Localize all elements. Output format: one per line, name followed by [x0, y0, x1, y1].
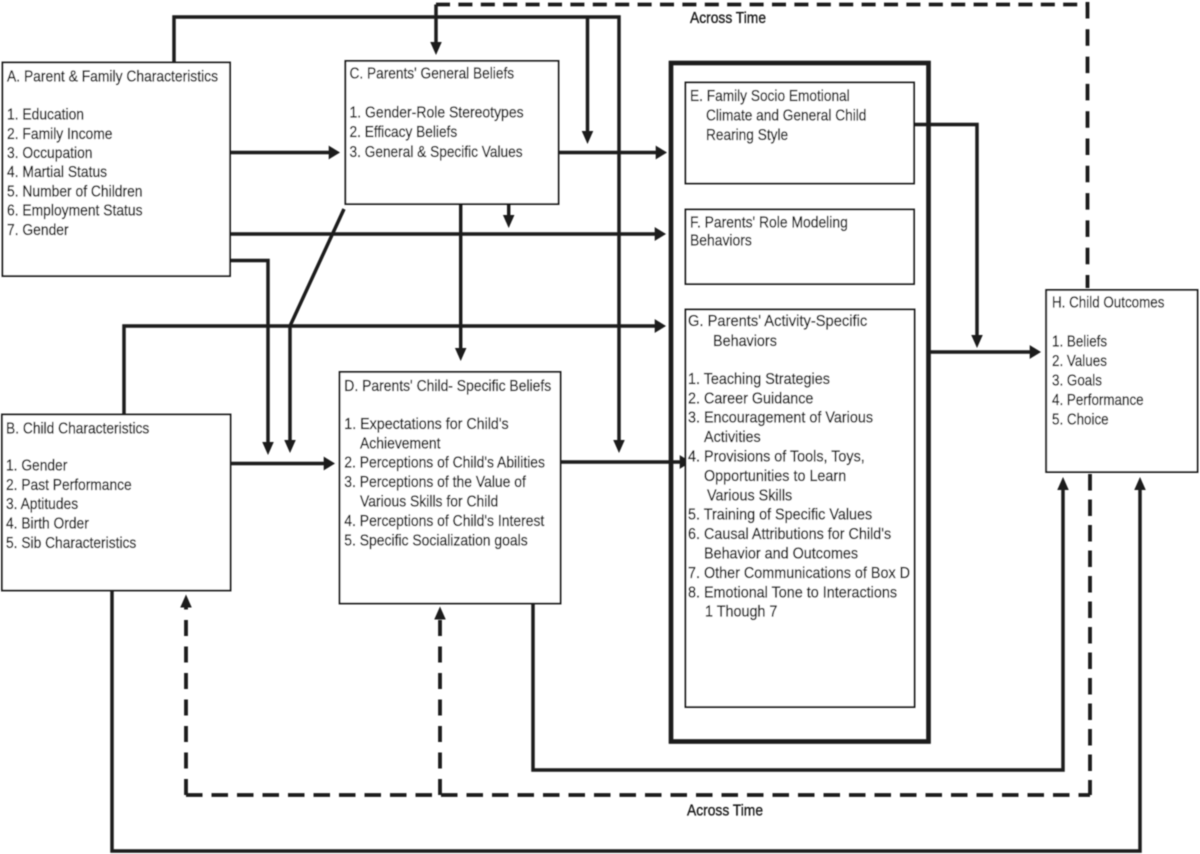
svg-text:1. Gender: 1. Gender	[6, 458, 68, 475]
svg-text:Behaviors: Behaviors	[713, 333, 777, 350]
svg-text:1. Education: 1. Education	[7, 107, 84, 124]
svg-text:6. Causal Attributions for Chi: 6. Causal Attributions for Child's	[688, 526, 891, 543]
svg-text:3. Goals: 3. Goals	[1052, 373, 1102, 390]
svg-text:E. Family Socio Emotional: E. Family Socio Emotional	[690, 88, 850, 105]
svg-text:5. Sib Characteristics: 5. Sib Characteristics	[6, 535, 136, 552]
svg-text:5. Training of Specific Values: 5. Training of Specific Values	[688, 507, 872, 524]
svg-text:3. General & Specific Values: 3. General & Specific Values	[350, 144, 523, 161]
svg-text:Various Skills: Various Skills	[707, 487, 792, 504]
svg-text:3. Occupation: 3. Occupation	[7, 145, 93, 162]
svg-text:3. Encouragement of Various: 3. Encouragement of Various	[688, 410, 873, 427]
svg-text:1. Beliefs: 1. Beliefs	[1052, 334, 1107, 351]
svg-text:2. Family Income: 2. Family Income	[7, 126, 113, 143]
svg-text:A. Parent & Family Characteris: A. Parent & Family Characteristics	[7, 69, 218, 86]
svg-text:1 Though 7: 1 Though 7	[705, 604, 777, 621]
svg-text:3. Aptitudes: 3. Aptitudes	[6, 496, 78, 513]
svg-text:7. Other Communications of Box: 7. Other Communications of Box D	[688, 565, 910, 582]
svg-text:G. Parents' Activity-Specific: G. Parents' Activity-Specific	[688, 313, 867, 330]
svg-text:5. Choice: 5. Choice	[1052, 411, 1109, 428]
svg-text:Opportunities to Learn: Opportunities to Learn	[704, 468, 846, 485]
svg-text:2. Past Performance: 2. Past Performance	[6, 477, 132, 494]
svg-text:Achievement: Achievement	[360, 435, 441, 452]
svg-text:Across Time: Across Time	[687, 803, 763, 820]
svg-text:F. Parents' Role Modeling: F. Parents' Role Modeling	[690, 215, 848, 232]
svg-text:4. Performance: 4. Performance	[1052, 392, 1144, 409]
svg-text:Activities: Activities	[704, 429, 761, 446]
svg-text:8. Emotional Tone to Interacti: 8. Emotional Tone to Interactions	[688, 584, 897, 601]
svg-text:2. Efficacy Beliefs: 2. Efficacy Beliefs	[350, 124, 458, 141]
svg-text:1. Teaching Strategies: 1. Teaching Strategies	[688, 371, 830, 388]
svg-text:5. Number of Children: 5. Number of Children	[7, 183, 143, 200]
svg-text:Across Time: Across Time	[690, 10, 766, 27]
svg-text:2. Values: 2. Values	[1052, 353, 1107, 370]
svg-text:3. Perceptions of the Value of: 3. Perceptions of the Value of	[344, 474, 526, 491]
svg-text:Various Skills for Child: Various Skills for Child	[360, 494, 498, 511]
svg-text:1. Expectations for Child's: 1. Expectations for Child's	[344, 416, 508, 433]
svg-text:1. Gender-Role Stereotypes: 1. Gender-Role Stereotypes	[350, 104, 524, 121]
svg-text:Behaviors: Behaviors	[690, 233, 752, 250]
svg-text:D. Parents' Child- Specific Be: D. Parents' Child- Specific Beliefs	[344, 378, 551, 395]
svg-text:Climate and General Child: Climate and General Child	[706, 108, 866, 125]
svg-text:Behavior and Outcomes: Behavior and Outcomes	[704, 546, 858, 563]
svg-text:H. Child Outcomes: H. Child Outcomes	[1052, 294, 1165, 311]
svg-text:C. Parents' General Beliefs: C. Parents' General Beliefs	[350, 66, 515, 83]
svg-text:B. Child Characteristics: B. Child Characteristics	[6, 421, 149, 438]
svg-text:4. Martial Status: 4. Martial Status	[7, 164, 107, 181]
svg-text:Rearing Style: Rearing Style	[706, 127, 788, 144]
svg-text:7. Gender: 7. Gender	[7, 222, 69, 239]
svg-text:2. Career Guidance: 2. Career Guidance	[688, 390, 813, 407]
svg-text:4. Provisions of Tools, Toys,: 4. Provisions of Tools, Toys,	[688, 449, 865, 466]
svg-text:6. Employment Status: 6. Employment Status	[7, 203, 143, 220]
svg-text:4. Birth Order: 4. Birth Order	[6, 516, 89, 533]
svg-text:2. Perceptions of Child's Abil: 2. Perceptions of Child's Abilities	[344, 455, 545, 472]
svg-text:4. Perceptions of Child's Inte: 4. Perceptions of Child's Interest	[344, 513, 544, 530]
svg-text:5. Specific Socialization goal: 5. Specific Socialization goals	[344, 532, 527, 549]
